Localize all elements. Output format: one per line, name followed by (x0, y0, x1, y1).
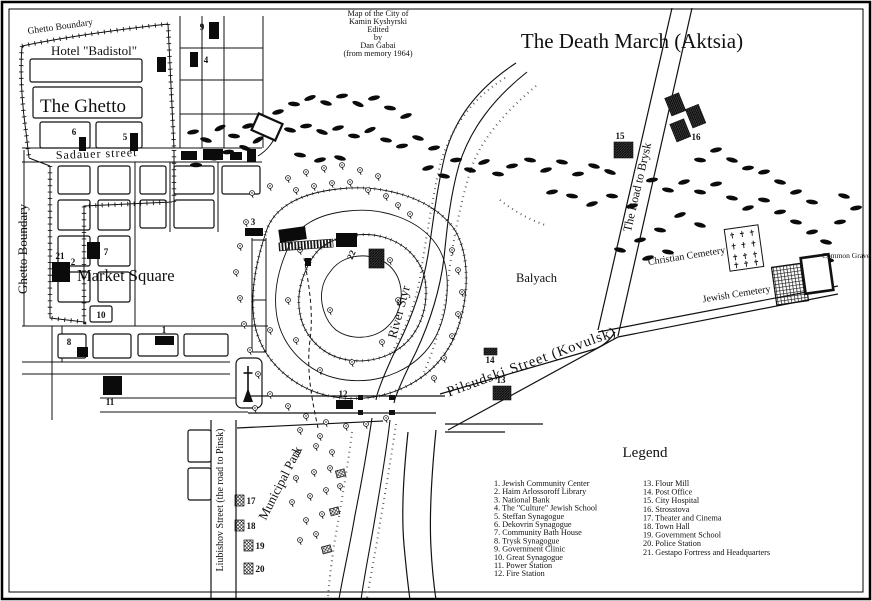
marker-12: 12 (339, 389, 349, 399)
legend-item: 12. Fire Station (494, 569, 545, 578)
jewish-cemetery-label: Jewish Cemetery (702, 284, 771, 306)
marker-8: 8 (67, 337, 72, 347)
buildings (52, 22, 708, 574)
marker-20: 20 (256, 564, 266, 574)
page-title: The Death March (Aktsia) (521, 29, 743, 53)
marker-3: 3 (251, 217, 256, 227)
labels: Map of the City of Kamin Kyshyrski Edite… (15, 9, 871, 572)
christian-cemetery-label: Christian Cemetery (647, 245, 726, 268)
marker-2: 2 (71, 257, 76, 267)
attribution-line-6: (from memory 1964) (343, 49, 412, 58)
map-page: Map of the City of Kamin Kyshyrski Edite… (0, 0, 872, 601)
pilsudski-street-label: Pilsudski Street (Kovulsk) (445, 324, 619, 400)
the-ghetto-label: The Ghetto (40, 96, 126, 117)
marker-13: 13 (497, 375, 507, 385)
marker-7: 7 (104, 247, 109, 257)
marker-18: 18 (247, 521, 257, 531)
marker-15: 15 (616, 131, 626, 141)
liubishov-street-label: Liubishov Street (the road to Pinsk) (215, 428, 226, 571)
legend: Legend 1. Jewish Community Center 2. Hai… (494, 445, 770, 578)
marker-11: 11 (106, 397, 115, 407)
municipal-park-label: Municipal Park (255, 443, 305, 522)
marker-5: 5 (123, 132, 128, 142)
marker-17: 17 (247, 496, 257, 506)
marker-4: 4 (204, 55, 209, 65)
marker-16: 16 (692, 132, 702, 142)
balyach-label: Balyach (516, 271, 558, 285)
river-styr-label: River Styr (384, 283, 413, 339)
common-grave-plot (801, 254, 834, 294)
marker-21: 21 (56, 251, 66, 261)
marker-1: 1 (162, 325, 167, 335)
marker-9: 9 (200, 22, 205, 32)
marker-10: 10 (97, 310, 107, 320)
fortress-hill (253, 188, 467, 428)
hotel-badistol-label: Hotel "Badistol" (51, 43, 137, 58)
legend-title: Legend (623, 445, 668, 461)
common-grave-label: Common Grave (822, 251, 871, 260)
map-markers: 9 4 6 5 2 7 10 21 1 8 11 3 12 13 14 15 1… (56, 22, 702, 574)
legend-item: 21. Gestapo Fortress and Headquarters (643, 548, 770, 557)
marker-14: 14 (486, 355, 496, 365)
marker-19: 19 (256, 541, 266, 551)
market-square-label: Market Square (77, 266, 175, 285)
ghetto-boundary-left-label: Ghetto Boundary (15, 204, 30, 294)
ghetto-boundary-top-label: Ghetto Boundary (27, 18, 94, 37)
marker-6: 6 (72, 127, 77, 137)
map-canvas: Map of the City of Kamin Kyshyrski Edite… (0, 0, 872, 601)
christian-cemetery-plot (724, 225, 764, 271)
sadauer-street-label: Sadauer street (56, 145, 138, 162)
